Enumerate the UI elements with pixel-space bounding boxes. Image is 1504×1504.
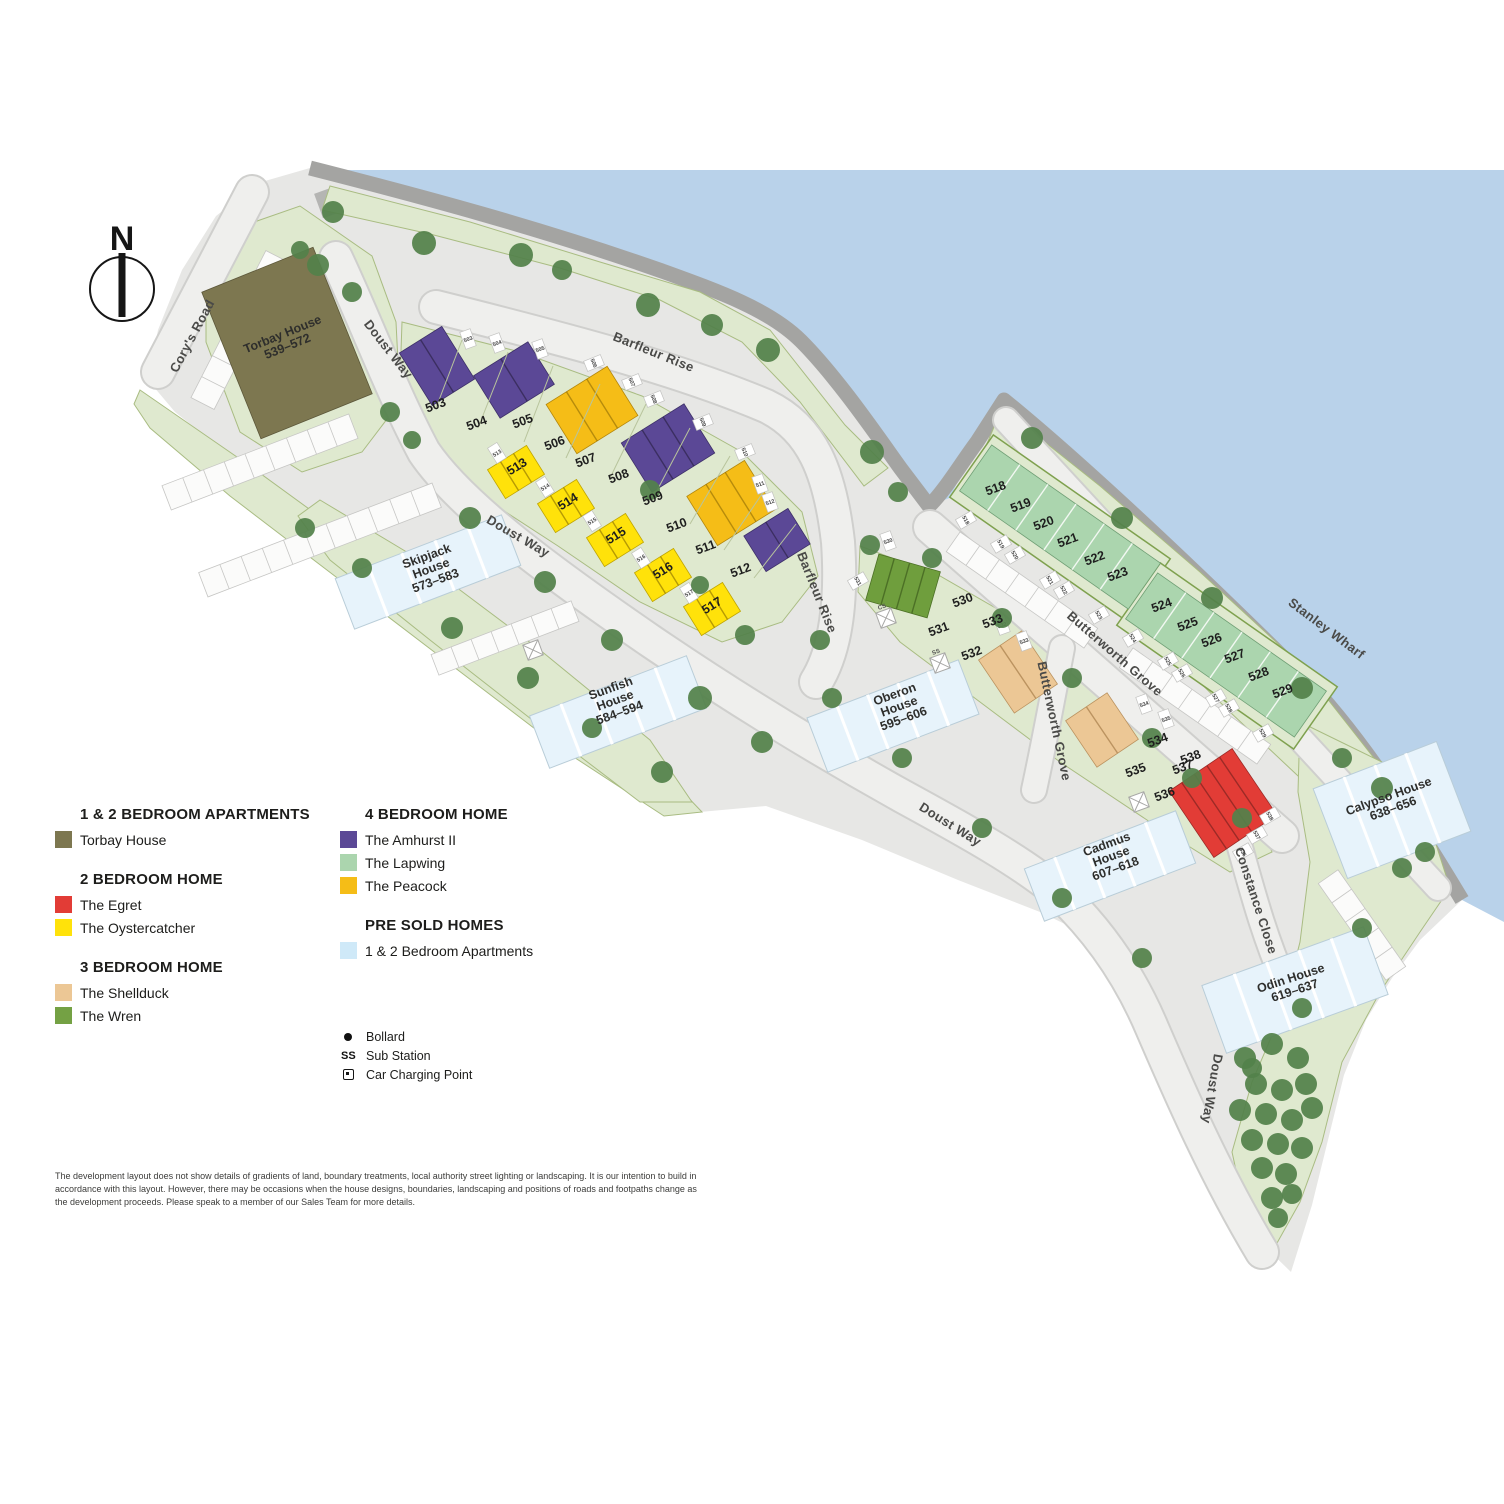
legend-item-the-egret: The Egret xyxy=(55,896,335,913)
legend-item-label: The Egret xyxy=(80,897,141,913)
legend-symbol-label: Car Charging Point xyxy=(366,1068,472,1082)
bollard-dot-icon xyxy=(344,1033,352,1041)
tree-icon xyxy=(701,314,723,336)
compass-north-label: N xyxy=(110,220,135,258)
legend-section-2-bedroom-home: 2 BEDROOM HOMEThe EgretThe Oystercatcher xyxy=(55,871,335,936)
tree-icon xyxy=(1255,1103,1277,1125)
site-plan-map: 5035045055065075085095105115125135145155… xyxy=(0,0,1504,1504)
tree-icon xyxy=(412,231,436,255)
tree-icon xyxy=(1267,1133,1289,1155)
tree-icon xyxy=(352,558,372,578)
tree-icon xyxy=(1332,748,1352,768)
legend-column-1: 1 & 2 BEDROOM APARTMENTSTorbay House2 BE… xyxy=(55,806,335,1047)
legend-item-the-wren: The Wren xyxy=(55,1007,335,1024)
tree-icon xyxy=(1291,1137,1313,1159)
tree-icon xyxy=(322,201,344,223)
tree-icon xyxy=(1241,1129,1263,1151)
tree-icon xyxy=(1282,1184,1302,1204)
tree-icon xyxy=(1287,1047,1309,1069)
tree-icon xyxy=(922,548,942,568)
legend-item-label: The Lapwing xyxy=(365,855,445,871)
tree-icon xyxy=(1352,918,1372,938)
tree-icon xyxy=(1261,1187,1283,1209)
tree-icon xyxy=(1062,668,1082,688)
legend-item-torbay-house: Torbay House xyxy=(55,831,335,848)
tree-icon xyxy=(295,518,315,538)
legend-section-1-2-bedroom-apartments: 1 & 2 BEDROOM APARTMENTSTorbay House xyxy=(55,806,335,848)
legend-item-label: The Oystercatcher xyxy=(80,920,195,936)
tree-icon xyxy=(1271,1079,1293,1101)
legend-swatch-the-egret xyxy=(55,896,72,913)
tree-icon xyxy=(691,576,709,594)
tree-icon xyxy=(756,338,780,362)
tree-icon xyxy=(1132,948,1152,968)
tree-icon xyxy=(735,625,755,645)
legend-item-the-lapwing: The Lapwing xyxy=(340,854,620,871)
tree-icon xyxy=(1052,888,1072,908)
tree-icon xyxy=(342,282,362,302)
tree-icon xyxy=(1251,1157,1273,1179)
car-charging-icon xyxy=(341,1069,358,1080)
tree-icon xyxy=(1021,427,1043,449)
site-plan-page: 5035045055065075085095105115125135145155… xyxy=(0,0,1504,1504)
tree-icon xyxy=(751,731,773,753)
tree-icon xyxy=(403,431,421,449)
tree-icon xyxy=(552,260,572,280)
tree-icon xyxy=(1281,1109,1303,1131)
car-charging-icon xyxy=(343,1069,354,1080)
bollard-icon xyxy=(341,1033,358,1041)
legend-section-title: 1 & 2 BEDROOM APARTMENTS xyxy=(80,806,335,823)
tree-icon xyxy=(1275,1163,1297,1185)
disclaimer-text: The development layout does not show det… xyxy=(55,1170,710,1208)
legend-item-label: The Peacock xyxy=(365,878,447,894)
tree-icon xyxy=(636,293,660,317)
tree-icon xyxy=(1295,1073,1317,1095)
legend-item-label: 1 & 2 Bedroom Apartments xyxy=(365,943,533,959)
legend-symbol-bollard: Bollard xyxy=(341,1030,472,1043)
tree-icon xyxy=(1291,677,1313,699)
legend-swatch-the-amhurst-ii xyxy=(340,831,357,848)
legend-section-4-bedroom-home: 4 BEDROOM HOMEThe Amhurst IIThe LapwingT… xyxy=(340,806,620,894)
tree-icon xyxy=(1245,1073,1267,1095)
legend-swatch-the-oystercatcher xyxy=(55,919,72,936)
tree-icon xyxy=(1261,1033,1283,1055)
legend-item-1-2-bedroom-apartments: 1 & 2 Bedroom Apartments xyxy=(340,942,620,959)
tree-icon xyxy=(441,617,463,639)
legend-column-2: 4 BEDROOM HOMEThe Amhurst IIThe LapwingT… xyxy=(340,806,620,982)
tree-icon xyxy=(1232,808,1252,828)
legend-section-pre-sold-homes: PRE SOLD HOMES1 & 2 Bedroom Apartments xyxy=(340,917,620,959)
legend-item-label: Torbay House xyxy=(80,832,166,848)
legend-section-title: PRE SOLD HOMES xyxy=(365,917,620,934)
legend-symbol-sub-station: SSSub Station xyxy=(341,1049,472,1062)
tree-icon xyxy=(601,629,623,651)
tree-icon xyxy=(1111,507,1133,529)
legend-symbol-label: Sub Station xyxy=(366,1049,431,1063)
legend-swatch-the-wren xyxy=(55,1007,72,1024)
legend-item-the-shellduck: The Shellduck xyxy=(55,984,335,1001)
tree-icon xyxy=(688,686,712,710)
tree-icon xyxy=(1234,1047,1256,1069)
legend-swatch-1-2-bedroom-apartments xyxy=(340,942,357,959)
tree-icon xyxy=(509,243,533,267)
legend-section-3-bedroom-home: 3 BEDROOM HOMEThe ShellduckThe Wren xyxy=(55,959,335,1024)
tree-icon xyxy=(822,688,842,708)
legend-swatch-torbay-house xyxy=(55,831,72,848)
legend-item-the-oystercatcher: The Oystercatcher xyxy=(55,919,335,936)
compass: N xyxy=(90,220,154,321)
tree-icon xyxy=(517,667,539,689)
tree-icon xyxy=(1268,1208,1288,1228)
legend-item-label: The Amhurst II xyxy=(365,832,456,848)
legend-section-title: 2 BEDROOM HOME xyxy=(80,871,335,888)
tree-icon xyxy=(860,440,884,464)
tree-icon xyxy=(307,254,329,276)
tree-icon xyxy=(1292,998,1312,1018)
legend-swatch-the-lapwing xyxy=(340,854,357,871)
tree-icon xyxy=(534,571,556,593)
tree-icon xyxy=(860,535,880,555)
legend-swatch-the-shellduck xyxy=(55,984,72,1001)
tree-icon xyxy=(892,748,912,768)
legend-item-label: The Shellduck xyxy=(80,985,169,1001)
tree-icon xyxy=(380,402,400,422)
legend-symbols: BollardSSSub StationCar Charging Point xyxy=(341,1030,472,1087)
legend-item-the-peacock: The Peacock xyxy=(340,877,620,894)
legend-item-label: The Wren xyxy=(80,1008,141,1024)
legend-section-title: 3 BEDROOM HOME xyxy=(80,959,335,976)
tree-icon xyxy=(1301,1097,1323,1119)
tree-icon xyxy=(888,482,908,502)
tree-icon xyxy=(1201,587,1223,609)
tree-icon xyxy=(459,507,481,529)
tree-icon xyxy=(1229,1099,1251,1121)
legend-symbol-car-charging-point: Car Charging Point xyxy=(341,1068,472,1081)
tree-icon xyxy=(1392,858,1412,878)
ss-icon: SS xyxy=(341,1050,358,1062)
legend-swatch-the-peacock xyxy=(340,877,357,894)
legend-section-title: 4 BEDROOM HOME xyxy=(365,806,620,823)
tree-icon xyxy=(651,761,673,783)
tree-icon xyxy=(1415,842,1435,862)
legend-item-the-amhurst-ii: The Amhurst II xyxy=(340,831,620,848)
tree-icon xyxy=(291,241,309,259)
legend-symbol-label: Bollard xyxy=(366,1030,405,1044)
